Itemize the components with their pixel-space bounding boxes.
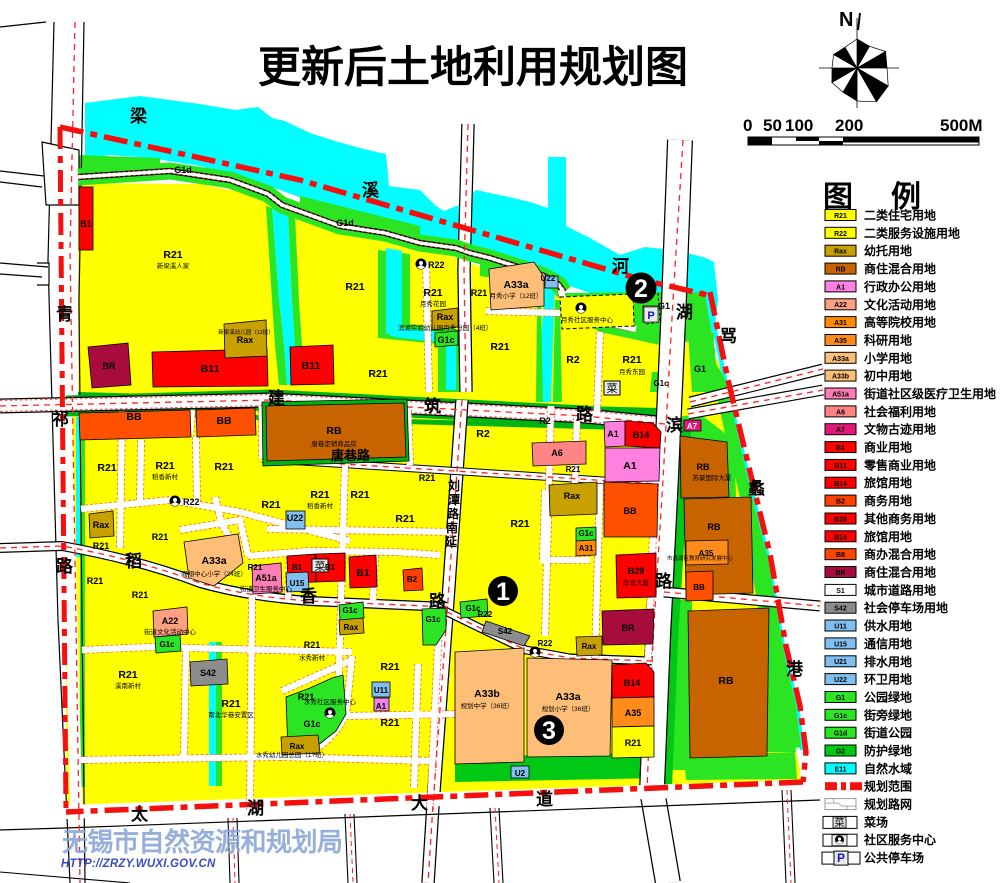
svg-text:南: 南 — [446, 520, 458, 535]
svg-text:Rax: Rax — [237, 335, 254, 345]
svg-text:新梁溪幼儿园（12班）: 新梁溪幼儿园（12班） — [218, 328, 274, 336]
svg-text:G1c: G1c — [303, 719, 320, 729]
svg-text:菜: 菜 — [835, 817, 845, 829]
svg-text:B2: B2 — [836, 499, 845, 506]
svg-text:RB: RB — [326, 425, 342, 437]
svg-text:商住混合用地: 商住混合用地 — [864, 261, 936, 276]
svg-text:A6: A6 — [836, 409, 845, 416]
svg-text:U22: U22 — [541, 274, 556, 283]
svg-text:G1c: G1c — [653, 379, 669, 388]
svg-text:U21: U21 — [834, 659, 847, 666]
svg-text:港: 港 — [786, 659, 804, 679]
svg-text:二类住宅用地: 二类住宅用地 — [864, 208, 936, 223]
svg-text:HTTP://ZRZY.WUXI.GOV.CN: HTTP://ZRZY.WUXI.GOV.CN — [61, 858, 216, 870]
svg-text:小学用地: 小学用地 — [864, 350, 912, 365]
svg-text:B1: B1 — [292, 563, 303, 572]
svg-text:街旁绿地: 街旁绿地 — [863, 707, 912, 722]
svg-text:自然水域: 自然水域 — [864, 761, 912, 776]
svg-text:新梁溪人家: 新梁溪人家 — [157, 261, 190, 270]
svg-text:R21: R21 — [152, 532, 169, 542]
svg-text:A1: A1 — [376, 702, 387, 711]
svg-text:P: P — [647, 310, 654, 322]
svg-text:Rax: Rax — [582, 642, 597, 651]
svg-text:BB: BB — [624, 506, 637, 516]
svg-text:滨湖实验幼儿园月秀分园（4班）: 滨湖实验幼儿园月秀分园（4班） — [398, 323, 493, 332]
svg-text:街道文化活动中心: 街道文化活动中心 — [144, 627, 197, 636]
svg-text:规划范围: 规划范围 — [864, 779, 912, 794]
svg-text:路: 路 — [447, 506, 460, 521]
svg-text:A33b: A33b — [832, 374, 849, 381]
svg-text:R21: R21 — [214, 461, 233, 473]
svg-text:R21: R21 — [834, 213, 847, 220]
svg-text:文物古迹用地: 文物古迹用地 — [864, 422, 936, 437]
svg-text:BR: BR — [835, 570, 845, 577]
svg-text:R21: R21 — [97, 462, 116, 474]
svg-text:大: 大 — [411, 793, 428, 813]
svg-text:A33a: A33a — [832, 356, 849, 363]
svg-text:太: 太 — [131, 804, 149, 824]
svg-text:U22: U22 — [287, 513, 304, 523]
svg-text:E11: E11 — [834, 766, 846, 773]
svg-text:路: 路 — [655, 571, 673, 591]
svg-text:街道卫生服务中心: 街道卫生服务中心 — [240, 584, 293, 593]
svg-text:湖: 湖 — [247, 799, 264, 818]
svg-text:A51a: A51a — [255, 573, 278, 583]
svg-text:BB: BB — [216, 415, 232, 427]
svg-text:R21: R21 — [87, 576, 104, 586]
svg-text:G1c: G1c — [834, 713, 847, 720]
svg-text:稻香新村: 稻香新村 — [152, 472, 179, 481]
svg-text:社会停车场用地: 社会停车场用地 — [863, 600, 948, 615]
svg-text:延: 延 — [444, 534, 458, 549]
svg-text:R2: R2 — [539, 416, 551, 426]
svg-text:水秀幼儿园总园（1?班）: 水秀幼儿园总园（1?班） — [256, 750, 328, 759]
svg-text:A22: A22 — [834, 302, 847, 309]
svg-text:500M: 500M — [940, 116, 983, 135]
svg-text:R21: R21 — [155, 460, 174, 472]
svg-text:水秀社区服务中心: 水秀社区服务中心 — [304, 697, 357, 706]
svg-text:商务用地: 商务用地 — [864, 493, 912, 508]
svg-text:科研用地: 科研用地 — [864, 333, 912, 348]
svg-text:B1: B1 — [356, 567, 370, 579]
svg-text:B1: B1 — [836, 445, 845, 452]
svg-text:路: 路 — [56, 556, 74, 576]
svg-text:B2: B2 — [407, 575, 418, 584]
svg-text:城市道路用地: 城市道路用地 — [864, 582, 936, 597]
svg-text:A22: A22 — [162, 616, 179, 626]
svg-text:二类服务设施用地: 二类服务设施用地 — [864, 225, 960, 240]
svg-text:Rax: Rax — [564, 491, 581, 501]
svg-text:A33b: A33b — [474, 688, 500, 700]
svg-text:A1: A1 — [623, 460, 637, 472]
svg-text:R21: R21 — [380, 661, 399, 673]
svg-text:R21: R21 — [350, 489, 369, 501]
svg-text:旅馆用地: 旅馆用地 — [864, 529, 912, 544]
svg-text:市蠡湖区教育研究发展中心: 市蠡湖区教育研究发展中心 — [667, 554, 734, 562]
svg-text:闻翔中心小学（24班）: 闻翔中心小学（24班） — [181, 569, 247, 578]
svg-text:R2: R2 — [476, 428, 490, 440]
svg-text:G1: G1 — [836, 695, 845, 702]
svg-text:高等院校用地: 高等院校用地 — [864, 315, 936, 330]
svg-text:Rax: Rax — [290, 742, 305, 751]
svg-text:B11: B11 — [302, 360, 321, 372]
svg-text:规划小学（36班）: 规划小学（36班） — [542, 704, 595, 713]
svg-text:R21: R21 — [118, 669, 137, 681]
svg-text:BR: BR — [103, 361, 116, 371]
svg-text:零售商业用地: 零售商业用地 — [863, 457, 936, 472]
svg-text:供水用地: 供水用地 — [863, 618, 912, 633]
svg-text:道: 道 — [536, 789, 553, 809]
svg-text:R21: R21 — [248, 563, 263, 572]
svg-text:A1: A1 — [607, 429, 619, 439]
svg-text:水秀新村: 水秀新村 — [299, 653, 326, 662]
svg-text:U11: U11 — [374, 686, 389, 695]
svg-text:更新后土地利用规划图: 更新后土地利用规划图 — [258, 44, 688, 92]
svg-text:R22: R22 — [538, 639, 553, 648]
svg-text:唐巷路: 唐巷路 — [331, 448, 371, 463]
svg-text:Rax: Rax — [344, 623, 359, 632]
svg-text:S1: S1 — [836, 588, 845, 595]
svg-text:1: 1 — [496, 578, 510, 606]
svg-text:无锡市自然资源和规划局: 无锡市自然资源和规划局 — [62, 827, 343, 857]
svg-text:R21: R21 — [380, 717, 399, 729]
svg-text:G1d: G1d — [336, 218, 354, 228]
svg-text:R21: R21 — [471, 288, 488, 298]
svg-text:排水用地: 排水用地 — [864, 654, 912, 669]
svg-text:G1c: G1c — [342, 606, 358, 615]
svg-text:菜: 菜 — [607, 382, 618, 395]
svg-text:月秀花园: 月秀花园 — [420, 299, 446, 308]
svg-text:菜: 菜 — [315, 560, 326, 573]
svg-text:筑: 筑 — [424, 396, 441, 416]
svg-text:稻香新村: 稻香新村 — [307, 501, 334, 510]
svg-text:R22: R22 — [428, 260, 445, 270]
svg-text:RB: RB — [708, 522, 721, 532]
svg-text:唐巷定销商品房: 唐巷定销商品房 — [311, 439, 357, 448]
svg-text:月秀东园: 月秀东园 — [619, 367, 645, 376]
svg-text:B1: B1 — [80, 219, 92, 229]
svg-text:200: 200 — [835, 116, 863, 135]
svg-text:稻: 稻 — [125, 552, 142, 571]
svg-text:Rax: Rax — [93, 520, 110, 530]
svg-text:R21: R21 — [490, 341, 509, 353]
svg-text:河: 河 — [612, 257, 629, 276]
svg-text:R21: R21 — [566, 465, 581, 474]
svg-text:公园绿地: 公园绿地 — [864, 690, 912, 705]
svg-text:A7: A7 — [836, 427, 845, 434]
svg-text:R21: R21 — [304, 640, 321, 650]
svg-text:R22: R22 — [183, 497, 200, 507]
svg-text:商住混合用地: 商住混合用地 — [864, 565, 936, 580]
svg-text:P: P — [837, 851, 845, 865]
svg-text:环卫用地: 环卫用地 — [864, 672, 912, 687]
svg-text:A1: A1 — [836, 284, 845, 291]
svg-text:A35: A35 — [625, 708, 642, 718]
svg-text:G2: G2 — [836, 749, 845, 756]
svg-text:香: 香 — [300, 587, 317, 606]
svg-text:G1c: G1c — [437, 335, 454, 345]
svg-text:B14: B14 — [834, 481, 847, 488]
svg-text:溪南新村: 溪南新村 — [115, 681, 142, 690]
svg-text:社区服务中心: 社区服务中心 — [863, 832, 936, 847]
svg-text:R21: R21 — [93, 541, 110, 551]
svg-text:BB: BB — [126, 411, 142, 423]
svg-text:R21: R21 — [310, 489, 329, 501]
svg-text:BR: BR — [622, 623, 635, 633]
svg-text:通信用地: 通信用地 — [864, 636, 912, 651]
svg-text:S42: S42 — [200, 668, 216, 678]
svg-text:其他商务用地: 其他商务用地 — [864, 511, 936, 526]
svg-text:防护绿地: 防护绿地 — [864, 743, 912, 758]
svg-text:R21: R21 — [221, 698, 240, 710]
svg-text:G1: G1 — [694, 364, 706, 374]
svg-text:50: 50 — [763, 116, 782, 135]
svg-text:G1: G1 — [658, 301, 670, 311]
svg-text:规划中学（36班）: 规划中学（36班） — [461, 701, 514, 710]
svg-text:公共停车场: 公共停车场 — [864, 850, 924, 865]
svg-text:路: 路 — [429, 591, 447, 611]
svg-text:建: 建 — [268, 388, 285, 408]
svg-text:R2: R2 — [566, 354, 580, 366]
svg-text:社会福利用地: 社会福利用地 — [863, 404, 936, 419]
svg-text:A51a: A51a — [832, 392, 849, 399]
svg-text:G1c: G1c — [425, 615, 441, 624]
svg-text:R21: R21 — [625, 738, 642, 748]
svg-text:U22: U22 — [834, 677, 847, 684]
svg-text:R21: R21 — [368, 368, 387, 380]
svg-text:N: N — [839, 9, 853, 31]
svg-text:B14: B14 — [633, 430, 650, 440]
svg-text:G1c: G1c — [159, 640, 175, 649]
svg-text:RB: RB — [718, 675, 734, 687]
svg-text:B11: B11 — [201, 363, 220, 375]
svg-text:A31: A31 — [834, 320, 847, 327]
svg-text:祁: 祁 — [52, 409, 69, 429]
svg-text:商业用地: 商业用地 — [864, 440, 912, 455]
svg-text:菜场: 菜场 — [863, 814, 888, 829]
svg-text:青: 青 — [56, 304, 73, 324]
svg-text:湖: 湖 — [676, 303, 693, 322]
svg-text:U11: U11 — [834, 624, 847, 631]
svg-text:初中用地: 初中用地 — [864, 368, 912, 383]
svg-text:滨: 滨 — [666, 415, 683, 435]
svg-text:文化活动用地: 文化活动用地 — [864, 297, 936, 312]
svg-text:路: 路 — [576, 404, 594, 424]
svg-text:南北华巷安置区: 南北华巷安置区 — [208, 710, 254, 719]
svg-text:苏豪国际大厦: 苏豪国际大厦 — [693, 473, 733, 482]
svg-text:BB: BB — [693, 583, 705, 592]
svg-text:Rax: Rax — [834, 249, 847, 256]
svg-text:R21: R21 — [261, 499, 280, 511]
svg-text:月秀小学（12班）: 月秀小学（12班） — [490, 291, 543, 300]
svg-text:蠡: 蠡 — [748, 478, 765, 498]
svg-text:U2: U2 — [515, 769, 526, 778]
svg-text:A33a: A33a — [201, 555, 226, 567]
svg-text:R21: R21 — [423, 287, 442, 299]
svg-text:R22: R22 — [478, 610, 493, 619]
svg-text:B14: B14 — [624, 678, 641, 688]
svg-text:B8: B8 — [836, 552, 845, 559]
svg-text:G1c: G1c — [578, 529, 594, 538]
svg-text:S42: S42 — [498, 627, 513, 636]
svg-text:B14: B14 — [834, 534, 847, 541]
svg-text:B1: B1 — [325, 563, 336, 572]
svg-text:R21: R21 — [622, 354, 641, 366]
svg-text:街道公园: 街道公园 — [863, 725, 912, 740]
svg-text:U15: U15 — [834, 641, 847, 648]
svg-text:G1d: G1d — [174, 165, 192, 175]
svg-text:A33a: A33a — [555, 691, 580, 703]
svg-text:0: 0 — [743, 116, 752, 135]
svg-text:A31: A31 — [579, 544, 594, 553]
svg-text:幼托用地: 幼托用地 — [864, 243, 912, 258]
svg-text:街道社区级医疗卫生用地: 街道社区级医疗卫生用地 — [863, 386, 996, 401]
svg-text:RB: RB — [697, 462, 710, 472]
svg-text:潭: 潭 — [448, 492, 460, 507]
svg-text:梁: 梁 — [129, 106, 148, 126]
svg-text:R21: R21 — [132, 590, 149, 600]
svg-text:RB: RB — [835, 267, 845, 274]
svg-text:商办混合用地: 商办混合用地 — [864, 547, 936, 562]
svg-text:旅馆用地: 旅馆用地 — [864, 475, 912, 490]
svg-text:100: 100 — [785, 116, 813, 135]
svg-text:骂: 骂 — [720, 327, 737, 346]
svg-text:B29: B29 — [834, 517, 847, 524]
svg-text:R21: R21 — [345, 281, 364, 293]
svg-text:3: 3 — [542, 717, 556, 745]
svg-text:A33a: A33a — [503, 279, 528, 291]
svg-text:R21: R21 — [163, 249, 182, 261]
svg-text:R21: R21 — [510, 518, 529, 530]
svg-text:B11: B11 — [834, 463, 847, 470]
svg-text:规划路网: 规划路网 — [864, 797, 912, 812]
svg-text:A6: A6 — [551, 448, 563, 458]
svg-text:G1d: G1d — [834, 731, 848, 738]
svg-text:A7: A7 — [687, 422, 698, 431]
svg-text:行政办公用地: 行政办公用地 — [863, 279, 936, 294]
svg-text:溪: 溪 — [362, 181, 380, 200]
svg-text:月秀社区服务中心: 月秀社区服务中心 — [561, 315, 614, 324]
svg-text:Rax: Rax — [437, 312, 454, 322]
svg-text:R21: R21 — [419, 473, 436, 483]
svg-text:S42: S42 — [834, 606, 847, 613]
svg-text:刘: 刘 — [448, 478, 460, 493]
svg-text:华东大厦: 华东大厦 — [623, 578, 650, 587]
svg-text:B29: B29 — [628, 566, 645, 576]
svg-text:2: 2 — [634, 275, 648, 303]
svg-text:A35: A35 — [834, 338, 847, 345]
svg-text:R22: R22 — [834, 231, 847, 238]
svg-text:R21: R21 — [395, 513, 414, 525]
